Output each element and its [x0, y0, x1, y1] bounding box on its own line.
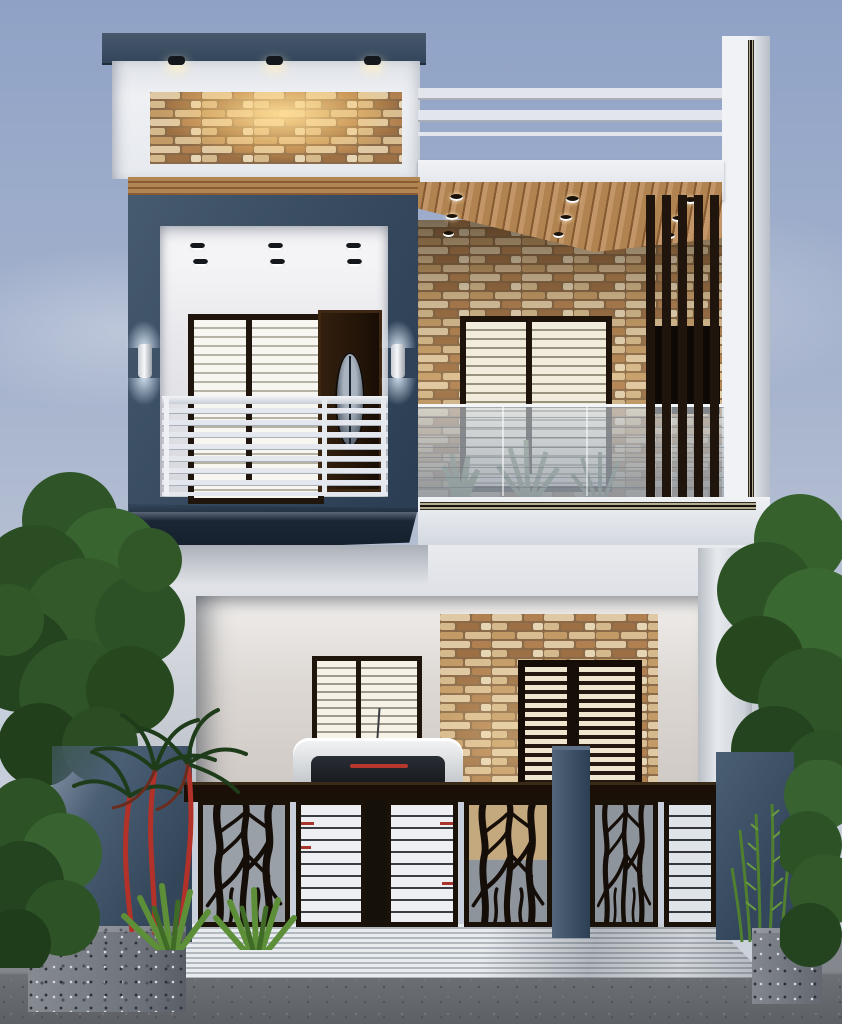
gate-branch-panel: [464, 800, 552, 927]
shrub-right: [780, 760, 842, 970]
parapet-downlight: [266, 56, 283, 65]
pillar-groove: [748, 40, 754, 510]
gate-white-panel: [386, 800, 458, 927]
house-render-scene: [0, 0, 842, 1024]
ceiling-downlight: [566, 196, 579, 203]
ceiling-downlight: [268, 243, 283, 250]
railing-post: [322, 398, 327, 496]
gate-white-panel: [296, 800, 366, 927]
ceiling-downlight: [347, 259, 362, 266]
ceiling-downlight: [450, 194, 463, 201]
sconce-glow-down: [124, 378, 164, 408]
railing-post: [381, 398, 386, 496]
balcony-railing-top-rail: [162, 396, 388, 404]
gate-white-panel: [664, 800, 716, 927]
car-brake-light: [350, 764, 408, 768]
ceiling-downlight: [193, 259, 208, 266]
wood-slat-screen: [646, 195, 724, 505]
gate-red-accent: [301, 822, 314, 825]
ceiling-downlight: [190, 243, 205, 250]
wall-sconce: [391, 344, 405, 378]
gate-branch-panel: [590, 800, 658, 927]
stone-panel-glow: [150, 92, 402, 164]
glass-joint: [502, 406, 504, 496]
ceiling-downlight: [346, 243, 361, 250]
gate-red-accent: [440, 822, 453, 825]
parapet-downlight: [364, 56, 381, 65]
fascia-groove: [420, 502, 756, 511]
right-pillar: [722, 36, 770, 548]
ceiling-downlight: [560, 215, 572, 221]
ceiling-downlight: [553, 232, 564, 238]
terrace-railing: [418, 88, 724, 136]
ceiling-downlight: [443, 231, 454, 237]
gate-divider: [366, 800, 386, 927]
ceiling-downlight: [270, 259, 285, 266]
wall-sconce: [138, 344, 152, 378]
ceiling-downlight: [446, 214, 458, 220]
agave-plants: [110, 838, 300, 950]
gate-red-accent: [442, 882, 453, 885]
gate-red-accent: [301, 846, 311, 849]
glass-joint: [586, 406, 588, 496]
parapet-downlight: [168, 56, 185, 65]
wood-band-left: [128, 177, 420, 197]
gate-pillar: [552, 746, 590, 938]
shrub-left: [0, 778, 102, 968]
